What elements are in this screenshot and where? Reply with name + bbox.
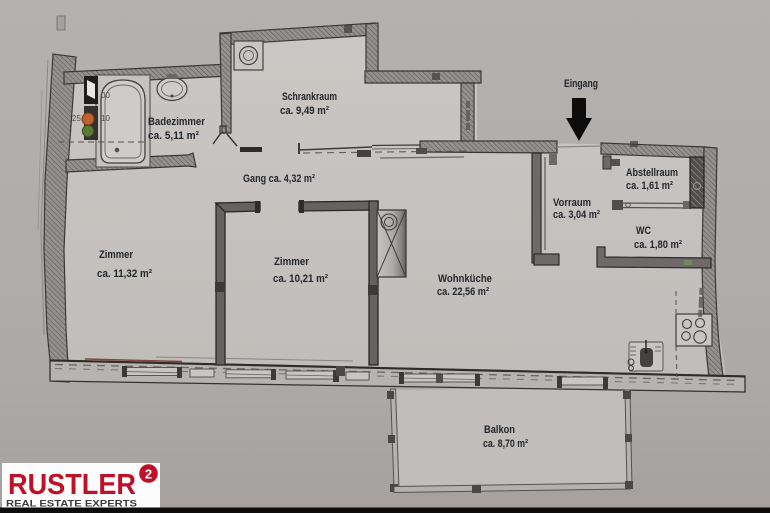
svg-text:ca. 1,80 m²: ca. 1,80 m² bbox=[634, 239, 682, 251]
svg-text:Zimmer: Zimmer bbox=[274, 256, 310, 268]
svg-text:Zimmer: Zimmer bbox=[99, 249, 134, 261]
svg-text:Wohnküche: Wohnküche bbox=[438, 273, 492, 285]
svg-text:ca. 8,70 m²: ca. 8,70 m² bbox=[483, 438, 528, 450]
svg-text:Vorraum: Vorraum bbox=[553, 197, 591, 209]
svg-text:Eingang: Eingang bbox=[564, 78, 598, 90]
svg-text:2: 2 bbox=[145, 467, 152, 482]
svg-text:25: 25 bbox=[72, 114, 81, 123]
svg-text:Balkon: Balkon bbox=[484, 424, 515, 436]
svg-text:Gang ca. 4,32 m²: Gang ca. 4,32 m² bbox=[243, 173, 315, 185]
svg-text:WC: WC bbox=[636, 225, 651, 237]
svg-text:RUSTLER: RUSTLER bbox=[8, 469, 136, 501]
svg-text:ca. 22,56 m²: ca. 22,56 m² bbox=[437, 286, 489, 298]
svg-text:Schrankraum: Schrankraum bbox=[282, 91, 337, 103]
svg-text:00: 00 bbox=[101, 91, 110, 100]
svg-text:ca. 1,61 m²: ca. 1,61 m² bbox=[626, 180, 673, 192]
svg-text:ca. 9,49 m²: ca. 9,49 m² bbox=[280, 105, 329, 117]
svg-text:Badezimmer: Badezimmer bbox=[148, 116, 206, 128]
svg-text:ca. 11,32 m²: ca. 11,32 m² bbox=[97, 268, 152, 280]
svg-text:10: 10 bbox=[101, 114, 110, 123]
svg-text:ca. 10,21 m²: ca. 10,21 m² bbox=[273, 273, 328, 285]
svg-text:ca. 5,11 m²: ca. 5,11 m² bbox=[148, 130, 199, 142]
svg-text:Abstellraum: Abstellraum bbox=[626, 167, 678, 179]
svg-text:ca. 3,04 m²: ca. 3,04 m² bbox=[553, 209, 600, 221]
